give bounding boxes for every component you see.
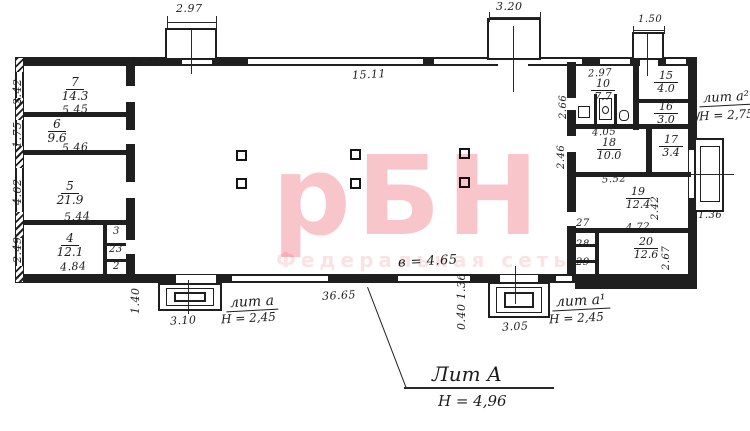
- room-5-number: 5: [61, 180, 79, 194]
- axis-line: [690, 174, 734, 175]
- column: [236, 150, 247, 161]
- axis-line: [191, 30, 192, 74]
- room-7-area: 14.3: [56, 90, 94, 103]
- room-29-number: 29: [576, 257, 590, 268]
- room-16-area: 3.0: [648, 114, 684, 126]
- sink-icon: [578, 106, 590, 118]
- door-room-18: [567, 136, 576, 152]
- annex-side-lit-label: лит а²: [699, 89, 750, 108]
- room-5-label: 5 21.9: [50, 180, 90, 207]
- door-room-7: [126, 86, 135, 102]
- column: [236, 178, 247, 189]
- lit-a-underline: [404, 387, 554, 389]
- dim-room-5-width: 5.44: [64, 209, 91, 223]
- porch-left-inner: [174, 292, 206, 302]
- building-lit-label: Лит А: [432, 362, 502, 386]
- axis-line: [188, 280, 189, 314]
- projection-right: [632, 32, 664, 60]
- floor-plan-canvas: 2.97 3.20 1.50 15.11 14.75 12.70 7 14.3 …: [0, 0, 750, 431]
- dim-room-6-depth: 1.75: [11, 122, 24, 149]
- room-27-number: 27: [576, 218, 590, 229]
- wall-rooms-10-15: [633, 62, 639, 130]
- dim-porch-right-width: 3.05: [502, 319, 529, 333]
- dim-room-19-depth: 2.42: [650, 196, 661, 220]
- dim-room-19-width: 5.52: [602, 173, 627, 185]
- dim-room-10-depth: 2.66: [558, 95, 569, 119]
- dim-room-20-depth: 2.67: [661, 246, 672, 270]
- dim-room-4-depth: 2.49: [11, 237, 24, 264]
- porch-left-height-label: Н = 2,45: [221, 310, 277, 327]
- dim-porch-right-depth: 0.40 1.36: [455, 273, 468, 330]
- axis-line: [513, 26, 514, 92]
- watermark-logo: рБН: [272, 132, 545, 260]
- room-15-label: 15 4.0: [648, 70, 684, 95]
- door-room-19: [567, 212, 576, 226]
- dim-projection-left: 2.97: [176, 2, 203, 15]
- room-20-label: 20 12.6: [626, 236, 666, 261]
- column: [459, 148, 470, 159]
- dim-line: [489, 17, 541, 18]
- room-4-label: 4 12.1: [50, 232, 90, 259]
- window-bottom-1: [232, 275, 328, 282]
- room-15-area: 4.0: [648, 83, 684, 95]
- room-18-area: 10.0: [590, 150, 628, 162]
- door-room-5: [126, 182, 135, 198]
- dim-porch-left-width: 3.10: [170, 313, 197, 327]
- room-7-number: 7: [66, 76, 84, 90]
- dim-porch-left-depth: 1.40: [129, 288, 142, 315]
- toilet-bowl-icon: [602, 106, 609, 114]
- room-7-label: 7 14.3: [56, 76, 94, 103]
- dim-line: [167, 22, 217, 23]
- room-23-number: 23: [109, 244, 123, 255]
- room-17-area: 3.4: [654, 147, 688, 159]
- dim-room-7-width: 5.45: [62, 102, 89, 116]
- door-room-4: [126, 240, 135, 254]
- column: [350, 178, 361, 189]
- room-3-number: 3: [113, 226, 120, 237]
- dim-annex-side-width: 1.36: [698, 210, 722, 221]
- dim-room-18-depth: 2.46: [556, 145, 567, 169]
- annex-side-height-label: Н = 2,75: [699, 107, 750, 124]
- room-10-label: 10 7.7: [586, 78, 620, 103]
- wall-closets-right-vertical: [595, 230, 599, 283]
- room-2-number: 2: [113, 261, 120, 272]
- wall-bottom-right-step: [575, 281, 697, 289]
- room-20-area: 12.6: [626, 249, 666, 261]
- dim-room-20-width: 4.72: [626, 221, 651, 233]
- dim-hall-width: 15.11: [352, 67, 387, 82]
- wall-rooms-18-17: [646, 129, 652, 177]
- window-bottom-3: [556, 275, 572, 282]
- room-16-label: 16 3.0: [648, 101, 684, 126]
- room-10-area: 7.7: [586, 91, 620, 103]
- dim-line: [633, 30, 665, 31]
- room-5-area: 21.9: [50, 194, 90, 207]
- window-top-4: [600, 58, 630, 65]
- room-4-area: 12.1: [50, 246, 90, 259]
- dim-projection-right: 1.50: [638, 14, 662, 25]
- dim-top-left-width: 14.75: [131, 59, 159, 69]
- porch-right-height-label: Н = 2,45: [549, 310, 605, 327]
- hall-height-note: в = 4.65: [398, 252, 458, 270]
- dim-room-5-depth: 4.02: [11, 179, 24, 206]
- axis-line: [515, 266, 516, 304]
- dim-room-6-width: 5.46: [62, 140, 89, 154]
- column: [350, 149, 361, 160]
- lit-a-leader: [367, 287, 407, 388]
- column: [459, 177, 470, 188]
- dim-hall-length: 36.65: [322, 288, 357, 303]
- door-opening-porch-left: [176, 275, 216, 283]
- window-top-2: [248, 58, 423, 65]
- window-top-5: [666, 58, 686, 65]
- room-17-label: 17 3.4: [654, 134, 688, 159]
- dim-room-7-depth: 2.42: [11, 79, 24, 106]
- room-6-number: 6: [48, 118, 66, 132]
- room-28-number: 28: [576, 239, 590, 250]
- room-18-label: 18 10.0: [590, 137, 628, 162]
- wall-closets-left-vertical: [103, 222, 107, 276]
- dim-room-4-width: 4.84: [60, 259, 87, 273]
- porch-right-inner: [504, 292, 534, 308]
- building-height-label: Н = 4,96: [438, 392, 507, 410]
- projection-center: [487, 18, 541, 60]
- urinal-icon: [619, 110, 629, 121]
- wall-rooms-18-19: [573, 172, 691, 177]
- door-room-6: [126, 130, 135, 144]
- dim-projection-center: 3.20: [496, 0, 523, 13]
- room-4-number: 4: [61, 232, 79, 246]
- porch-right-lit-label: лит а¹: [552, 292, 610, 312]
